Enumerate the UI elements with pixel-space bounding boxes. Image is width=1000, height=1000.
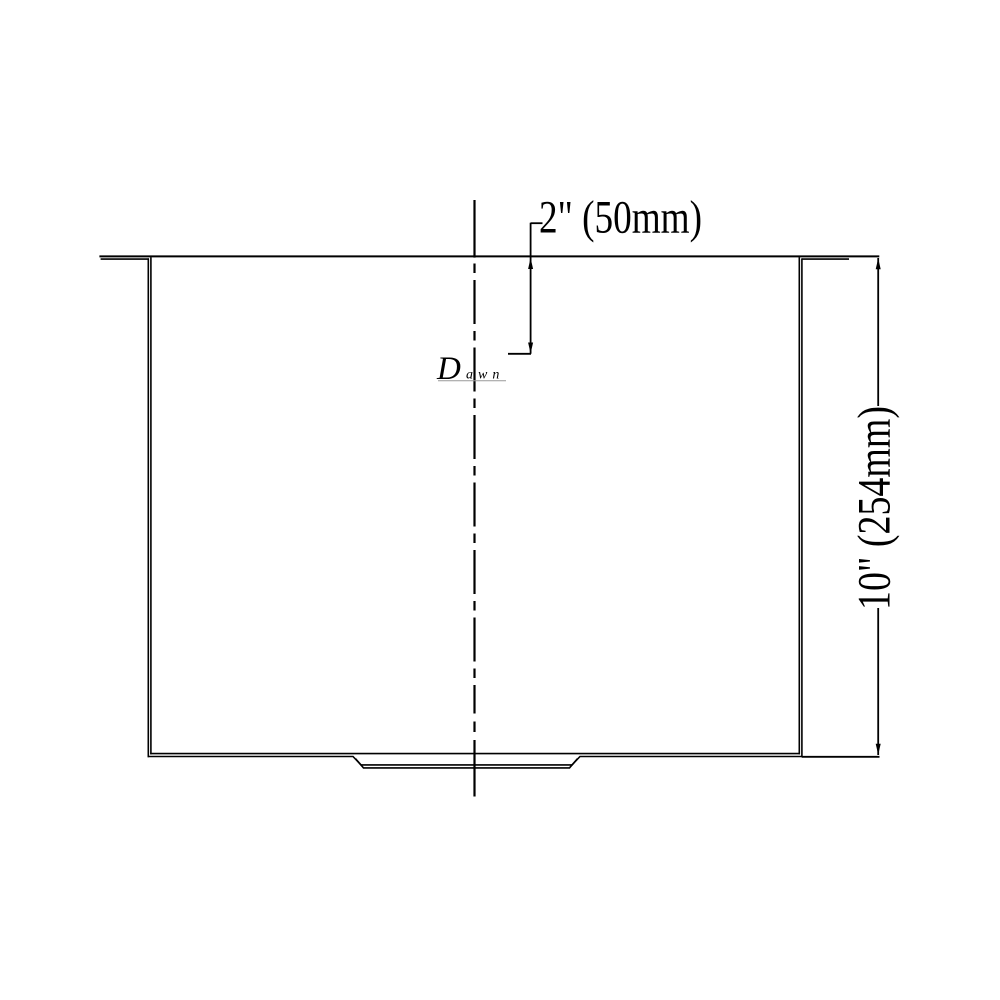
svg-text:10" (254mm): 10" (254mm) — [850, 406, 901, 610]
svg-text:D: D — [436, 351, 461, 387]
svg-text:2" (50mm): 2" (50mm) — [539, 193, 702, 244]
